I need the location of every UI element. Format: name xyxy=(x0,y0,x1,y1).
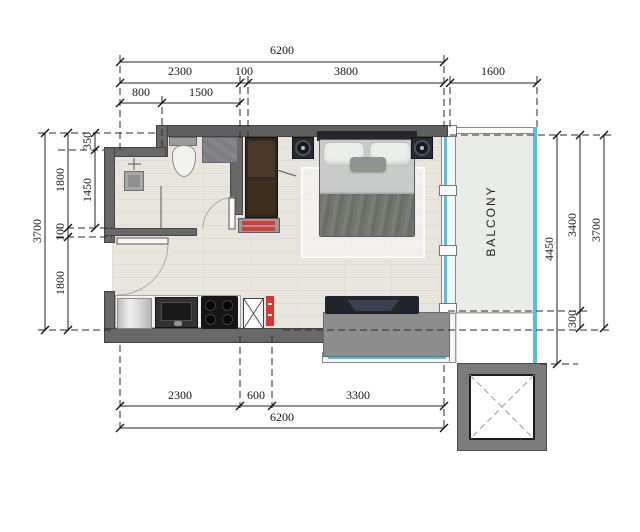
speaker-cone xyxy=(414,140,430,156)
dim-left-seg2: 100 xyxy=(54,223,66,241)
speaker-tweeter xyxy=(301,146,305,150)
dim-left-sub1: 350 xyxy=(81,132,93,150)
bed-accent-pillow xyxy=(350,157,386,172)
dim-bottom-seg2: 600 xyxy=(247,389,265,401)
dim-top-balcony: 1600 xyxy=(481,65,505,77)
balcony-label: BALCONY xyxy=(484,185,498,256)
dim-left-seg1: 1800 xyxy=(54,168,66,192)
balcony-side-glazing xyxy=(533,127,537,363)
balcony-slab-lines xyxy=(448,313,535,363)
dim-bottom-total: 6200 xyxy=(270,411,294,423)
riser-mark xyxy=(268,303,272,305)
wardrobe-panel-bottom xyxy=(248,180,275,214)
dim-bottom-seg1: 2300 xyxy=(168,389,192,401)
dim-right-seg2: 300 xyxy=(566,310,578,328)
dim-left-sub2: 1450 xyxy=(81,178,93,202)
riser-mark xyxy=(268,314,272,316)
window-glazing-right xyxy=(444,128,447,313)
dim-top-sub1: 800 xyxy=(132,86,150,98)
speaker-tweeter xyxy=(420,146,424,150)
floor-plan: BALCONY xyxy=(0,0,640,532)
tv-screen xyxy=(347,300,399,311)
dim-top-seg1: 2300 xyxy=(168,65,192,77)
speaker-right-icon xyxy=(411,137,433,159)
burner xyxy=(205,314,216,325)
speaker-left-icon xyxy=(292,137,314,159)
dim-top-total: 6200 xyxy=(270,44,294,56)
dim-left-total: 3700 xyxy=(31,219,43,243)
speaker-cone xyxy=(295,140,311,156)
wardrobe-panel-top xyxy=(248,141,275,177)
duct-box xyxy=(243,298,264,329)
dim-right-seg1: 3400 xyxy=(566,213,578,237)
dim-top-seg3: 3800 xyxy=(334,65,358,77)
bed-blanket xyxy=(320,194,414,236)
bathroom-sink-basin xyxy=(128,175,140,187)
riser-pipe xyxy=(266,296,274,326)
shower-tile xyxy=(202,137,238,163)
tv-console xyxy=(323,312,450,357)
shoe-cabinet-stripe xyxy=(242,227,275,231)
wall-bathroom-south xyxy=(104,228,197,236)
kitchen-faucet xyxy=(174,321,182,326)
dim-left-seg3: 1800 xyxy=(54,271,66,295)
dim-bottom-seg3: 3300 xyxy=(346,389,370,401)
burner xyxy=(222,314,233,325)
fridge xyxy=(117,298,152,329)
shoe-cabinet-stripe xyxy=(242,221,275,225)
elevator-shaft-interior xyxy=(469,374,535,440)
balcony-railing xyxy=(455,127,536,134)
dim-top-sub2: 1500 xyxy=(189,86,213,98)
dim-right-total: 3700 xyxy=(590,218,602,242)
wall-bottom xyxy=(104,328,324,343)
burner xyxy=(222,300,233,311)
dim-top-seg2: 100 xyxy=(235,65,253,77)
kitchen-sink-basin xyxy=(161,302,192,321)
burner xyxy=(205,300,216,311)
window-mullion xyxy=(439,245,457,256)
dim-right-outer: 4450 xyxy=(543,237,555,261)
cooktop xyxy=(201,296,238,329)
window-mullion xyxy=(439,185,457,196)
